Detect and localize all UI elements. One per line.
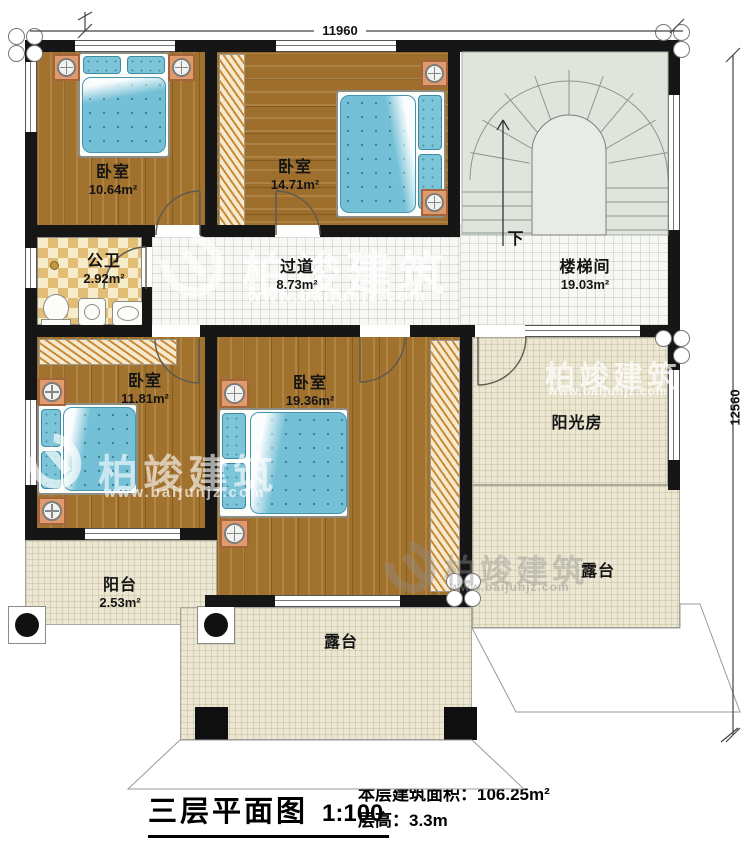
room-label-terrace-right: 露台 (538, 562, 658, 581)
floor-area-label: 本层建筑面积： (358, 785, 477, 804)
room-area: 11.81m² (75, 391, 215, 407)
pipe-column-icon (673, 24, 690, 41)
wall (25, 325, 150, 337)
room-label-stairwell: 楼梯间 19.03m² (515, 258, 655, 293)
window (275, 595, 400, 607)
room-name: 楼梯间 (515, 258, 655, 277)
room-name: 卧室 (240, 374, 380, 393)
wall (25, 225, 155, 237)
wall (410, 325, 475, 337)
room-label-bedroom-bottom-left: 卧室 11.81m² (75, 372, 215, 407)
square-column-icon (195, 707, 228, 740)
room-area: 19.03m² (515, 277, 655, 293)
plant-icon (224, 523, 245, 544)
square-column-icon (444, 707, 477, 740)
pipe-column-icon (673, 41, 690, 58)
wall (448, 52, 460, 235)
room-name: 公卫 (34, 252, 174, 271)
wardrobe-icon (39, 339, 177, 365)
wall (205, 337, 217, 540)
dimension-right: 12560 (728, 373, 743, 443)
wall (142, 237, 152, 247)
watermark-url: www.baijunjz.com (450, 580, 570, 594)
room-name: 卧室 (43, 163, 183, 182)
pipe-column-icon (655, 330, 672, 347)
nightstand-icon (220, 519, 249, 548)
wall (205, 52, 217, 235)
nightstand-icon (38, 497, 66, 525)
wall (180, 528, 217, 540)
toilet-icon (43, 294, 69, 322)
pipe-column-icon (8, 45, 25, 62)
pipe-column-icon (26, 45, 43, 62)
room-label-terrace-bottom: 露台 (281, 633, 401, 652)
nightstand-icon (421, 189, 448, 216)
stairs-icon (462, 52, 668, 235)
mattress-icon (82, 77, 166, 153)
wall (320, 225, 460, 237)
room-label-balcony: 阳台 2.53m² (50, 576, 190, 611)
mattress-icon (340, 95, 416, 213)
pipe-column-icon (26, 28, 43, 45)
floor-height-line: 层高：3.3m (358, 806, 448, 831)
room-area: 8.73m² (227, 277, 367, 293)
plant-icon (42, 382, 62, 402)
wall (200, 325, 360, 337)
watermark-url: www.baijunjz.com (548, 384, 668, 398)
room-name: 阳台 (50, 576, 190, 595)
floor-area-line: 本层建筑面积：106.25m² (358, 780, 550, 805)
room-name: 露台 (538, 562, 658, 581)
washing-machine-icon (78, 298, 106, 326)
pipe-column-icon (8, 28, 25, 45)
room-label-corridor: 过道 8.73m² (227, 258, 367, 293)
pipe-column-icon (655, 24, 672, 41)
watermark-url: www.baijunjz.com (104, 484, 265, 501)
room-label-bedroom-top-left: 卧室 10.64m² (43, 163, 183, 198)
floor-plan: 11960 12560 柏竣建筑 www.baijunjz.com 柏竣建筑 w… (0, 0, 750, 841)
pillow-icon (127, 56, 165, 74)
room-name: 露台 (281, 633, 401, 652)
pipe-column-icon (673, 330, 690, 347)
direction-text: 下 (503, 230, 529, 249)
plant-icon (425, 193, 444, 212)
room-area: 19.36m² (240, 393, 380, 409)
floor-height-label: 层高： (358, 811, 409, 830)
window (75, 40, 175, 52)
room-label-bedroom-bottom-mid: 卧室 19.36m² (240, 374, 380, 409)
pillow-icon (83, 56, 121, 74)
nightstand-icon (421, 60, 448, 87)
plan-title-text: 三层平面图 (148, 796, 308, 828)
plant-icon (42, 501, 62, 521)
plan-title: 三层平面图1:100 (148, 788, 389, 838)
sink-icon (112, 301, 144, 326)
window (85, 528, 180, 540)
round-column-icon (197, 606, 235, 644)
nightstand-icon (168, 54, 195, 81)
room-area: 10.64m² (43, 182, 183, 198)
floor-height-value: 3.3m (409, 811, 448, 830)
window (276, 40, 396, 52)
window (668, 95, 680, 230)
floor-area-value: 106.25m² (477, 785, 550, 804)
room-name: 卧室 (75, 372, 215, 391)
plant-icon (57, 58, 76, 77)
dimension-top: 11960 (314, 22, 366, 39)
plant-icon (425, 64, 444, 83)
room-area: 2.53m² (50, 595, 190, 611)
room-label-bedroom-top-mid: 卧室 14.71m² (225, 158, 365, 193)
nightstand-icon (53, 54, 80, 81)
room-area: 14.71m² (225, 177, 365, 193)
plant-icon (172, 58, 191, 77)
room-name: 卧室 (225, 158, 365, 177)
wall (200, 225, 275, 237)
nightstand-icon (38, 378, 66, 406)
room-label-bathroom: 公卫 2.92m² (34, 252, 174, 287)
room-name: 过道 (227, 258, 367, 277)
wall (205, 595, 275, 607)
window (525, 325, 640, 337)
stair-down-label: 下 (503, 230, 529, 249)
wall (25, 528, 85, 540)
pillow-icon (418, 95, 442, 150)
round-column-icon (8, 606, 46, 644)
room-area: 2.92m² (34, 271, 174, 287)
room-name: 阳光房 (507, 414, 647, 433)
window (25, 62, 37, 132)
room-label-sunroom: 阳光房 (507, 414, 647, 433)
wardrobe-icon (219, 54, 245, 227)
